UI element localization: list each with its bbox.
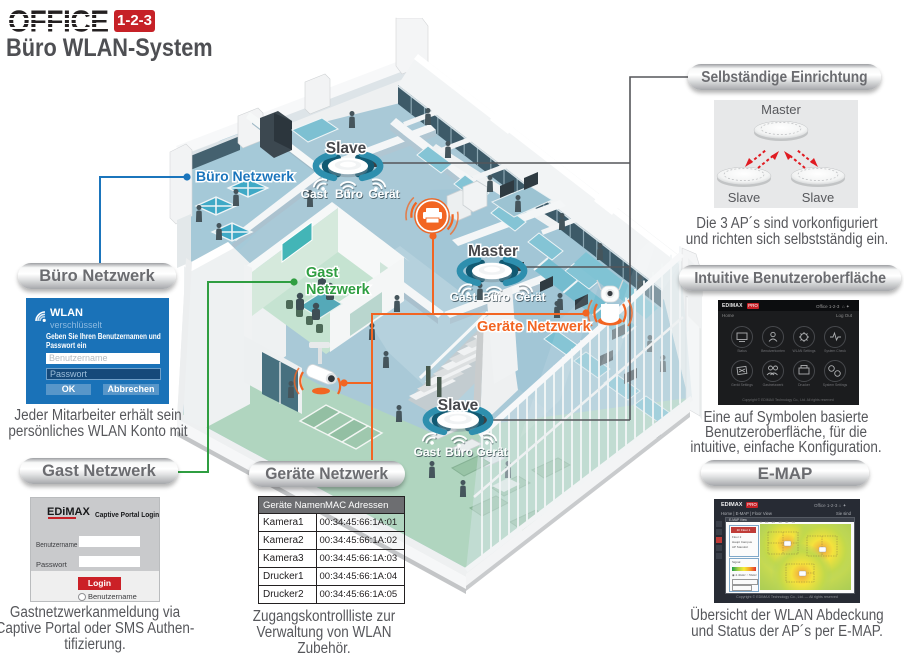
svg-text:Gast: Gast (301, 187, 328, 201)
svg-text:Slave: Slave (438, 397, 479, 414)
svg-text:Büro: Büro (445, 445, 473, 459)
svg-text:System Check: System Check (824, 349, 846, 353)
svg-text:Slave: Slave (326, 140, 367, 157)
svg-text:Gerät: Gerät (514, 290, 545, 304)
svg-text:Gast: Gast (414, 445, 441, 459)
svg-text:Büro: Büro (482, 290, 510, 304)
svg-text:Status: Status (737, 349, 747, 353)
svg-text:Slave: Slave (728, 190, 761, 205)
svg-text:Netzwerk: Netzwerk (306, 282, 371, 298)
svg-text:Gast: Gast (450, 290, 477, 304)
svg-text:Gastnetzwerk: Gastnetzwerk (763, 383, 784, 387)
svg-text:Master: Master (468, 243, 518, 260)
svg-text:Geräte Netzwerk: Geräte Netzwerk (477, 319, 592, 335)
svg-text:System Settings: System Settings (823, 383, 848, 387)
svg-text:Master: Master (761, 102, 801, 117)
svg-text:Gast: Gast (306, 265, 338, 281)
svg-text:Benutzerkonten: Benutzerkonten (761, 349, 785, 353)
svg-text:Drucker: Drucker (798, 383, 811, 387)
svg-text:Slave: Slave (802, 190, 835, 205)
svg-text:WLAN Settings: WLAN Settings (793, 349, 816, 353)
svg-text:Gerät Settings: Gerät Settings (731, 383, 753, 387)
svg-text:Gerät: Gerät (476, 445, 507, 459)
svg-text:Büro: Büro (335, 187, 363, 201)
svg-text:Copyright © EDIMAX Technology: Copyright © EDIMAX Technology Co., Ltd. … (742, 398, 834, 402)
svg-text:Gerät: Gerät (368, 187, 399, 201)
svg-text:Büro Netzwerk: Büro Netzwerk (196, 168, 294, 184)
